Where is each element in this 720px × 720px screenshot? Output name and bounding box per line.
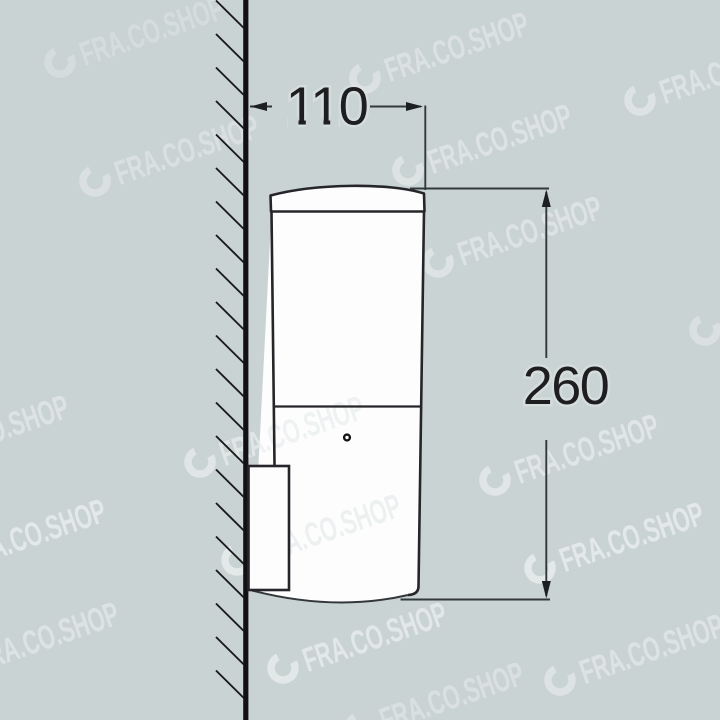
svg-text:260: 260 [523,356,609,416]
svg-text:110: 110 [286,77,368,137]
